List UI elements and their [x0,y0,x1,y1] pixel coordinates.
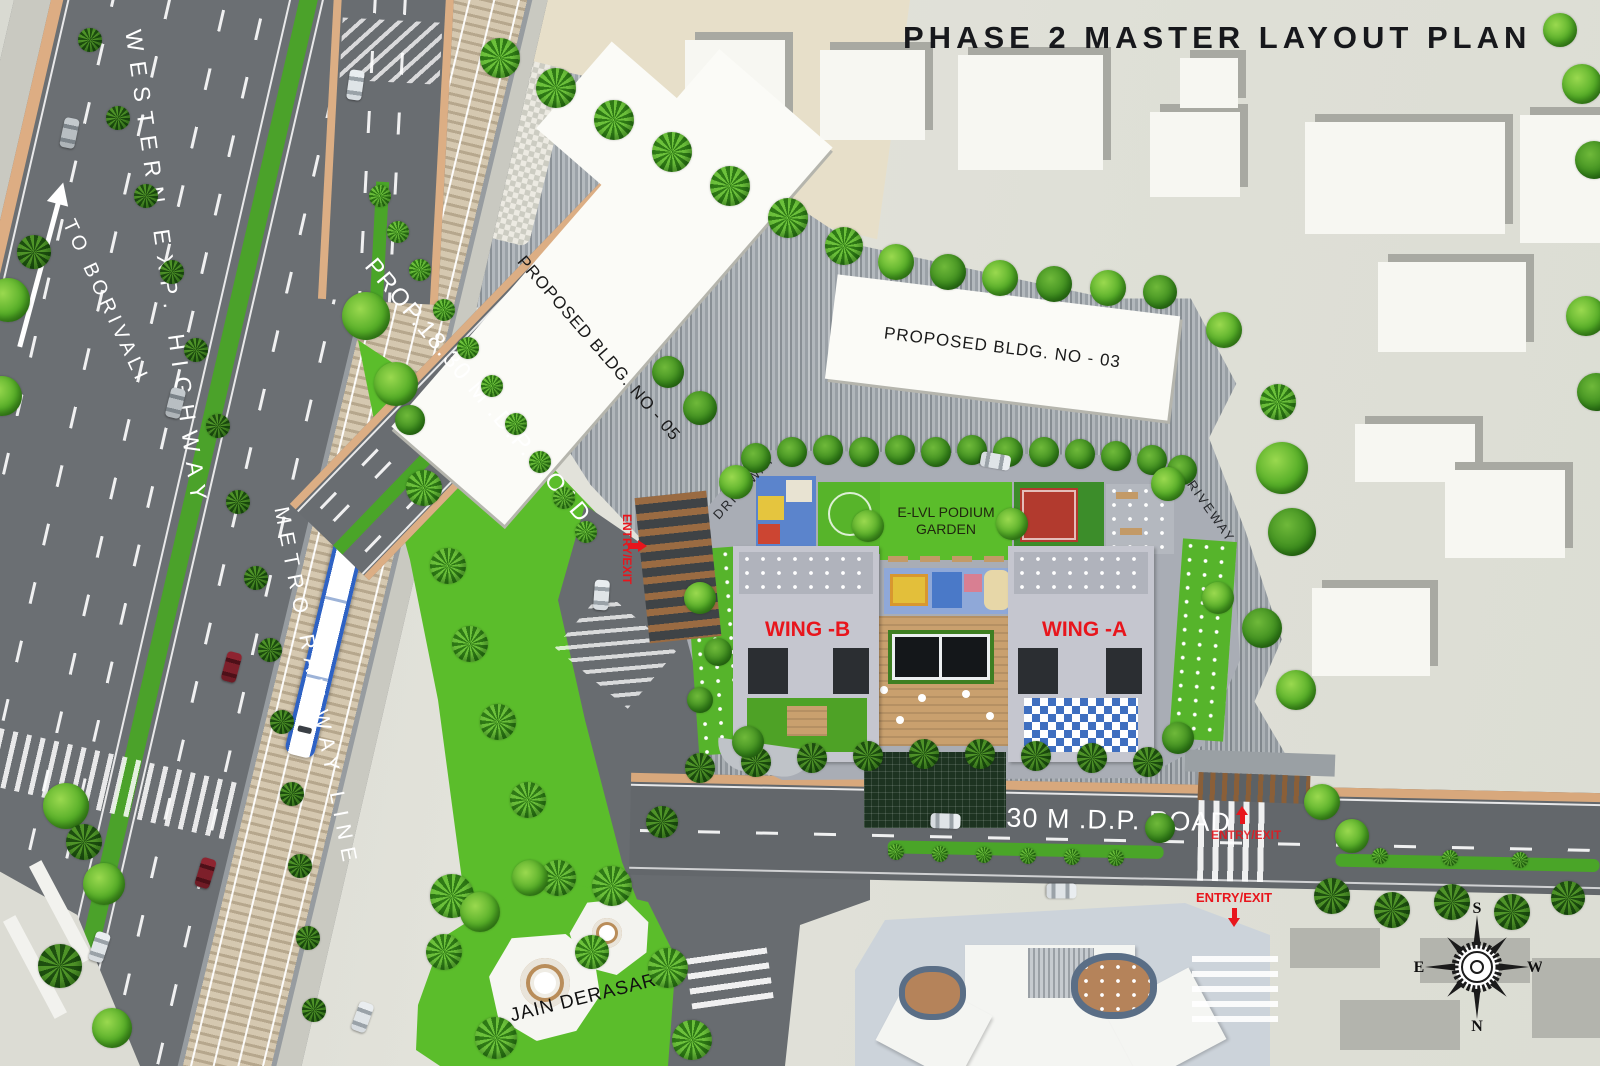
palm-tree-icon [797,743,827,773]
palm-tree-icon [1064,849,1080,865]
wing-a-core [1106,648,1142,694]
tree-icon [878,244,914,280]
tree-icon [777,437,807,467]
palm-tree-icon [430,548,466,584]
tree-icon [1145,813,1175,843]
tree-icon [512,860,548,896]
compass-east-label: E [1414,959,1425,976]
reflecting-pool [892,634,990,680]
page-title: PHASE 2 MASTER LAYOUT PLAN [903,20,1531,56]
palm-tree-icon [710,166,750,206]
tree-icon [652,356,684,388]
car-icon [930,813,961,829]
palm-tree-icon [594,100,634,140]
palm-tree-icon [505,413,527,435]
bench [888,556,908,562]
tree-icon [1036,266,1072,302]
palm-tree-icon [685,753,715,783]
palm-tree-icon [1314,878,1350,914]
palm-tree-icon [1442,850,1458,866]
context-building [1378,262,1526,352]
west-gate-canopy [635,491,722,644]
context-building [1445,470,1565,558]
palm-tree-icon [244,566,268,590]
dp-road-south: PROP.18.30 M .D.P. ROAD [629,773,1600,895]
tree-icon [92,1008,132,1048]
palm-tree-icon [17,235,51,269]
podium-sports-court [1014,482,1104,548]
context-building [1312,588,1430,676]
palm-tree-icon [652,132,692,172]
palm-tree-icon [78,28,102,52]
palm-tree-icon [1108,850,1124,866]
tree-icon [1029,437,1059,467]
tree-icon [1242,608,1282,648]
kids-playground [884,568,1012,614]
tree-icon [852,510,884,542]
palm-tree-icon [553,487,575,509]
bench [952,556,972,562]
phase1-deck [1078,960,1150,1012]
bench [920,556,940,562]
palm-tree-icon [932,846,948,862]
tree-icon [684,582,716,614]
tree-icon [1202,582,1234,614]
palm-tree-icon [1512,852,1528,868]
tree-icon [885,435,915,465]
palm-tree-icon [1021,741,1051,771]
tree-icon [1335,819,1369,853]
tree-icon [1577,373,1600,411]
tree-icon [43,783,89,829]
palm-tree-icon [529,451,551,473]
car-icon [1047,884,1077,899]
context-building [1180,58,1238,108]
palm-tree-icon [672,1020,712,1060]
palm-tree-icon [575,935,609,969]
palm-tree-icon [1020,848,1036,864]
palm-tree-icon [296,926,320,950]
wing-b-core [748,648,788,694]
palm-tree-icon [426,934,462,970]
entry-arrow-down-icon [1228,918,1240,927]
palm-tree-icon [510,782,546,818]
palm-tree-icon [1133,747,1163,777]
entry-exit-west-label: ENTRY/EXIT [620,514,634,584]
palm-tree-icon [976,847,992,863]
palm-tree-icon [888,844,904,860]
podium-garden-label: E-LVL PODIUM GARDEN [891,504,1001,539]
wing-a-label: WING -A [1042,618,1127,642]
wing-b-core [833,648,869,694]
tree-icon [1162,722,1194,754]
palm-tree-icon [457,337,479,359]
compass-north-label: N [1471,1018,1483,1032]
palm-tree-icon [433,299,455,321]
tree-icon [1304,784,1340,820]
phase1-deck [905,972,960,1014]
palm-tree-icon [1434,884,1470,920]
palm-tree-icon [1260,384,1296,420]
pedestrian-crossing [1192,948,1278,1022]
tree-icon [813,435,843,465]
wing-a: WING -A [1008,546,1154,762]
entry-arrow-up-icon [1236,806,1248,815]
master-layout-plan: PROP.18.30 M .D.P. ROAD PROPOSED BLDG. N… [0,0,1600,1066]
tree-icon [1268,508,1316,556]
compass-west-label: W [1527,959,1542,976]
palm-tree-icon [134,184,158,208]
palm-tree-icon [768,198,808,238]
tree-icon [1276,670,1316,710]
context-building [820,50,925,140]
tree-icon [849,437,879,467]
proposed-bldg-03-label: PROPOSED BLDG. NO - 03 [883,323,1122,372]
tree-icon [1543,13,1577,47]
tree-icon [1566,296,1600,336]
palm-tree-icon [909,739,939,769]
palm-tree-icon [270,710,294,734]
palm-tree-icon [475,1017,517,1059]
tree-icon [704,638,732,666]
tree-icon [687,687,713,713]
entry-arrow-down-icon [1232,908,1237,918]
wing-a-core [1018,648,1058,694]
palm-tree-icon [648,948,688,988]
phase1-pergola [1198,772,1311,804]
palm-tree-icon [369,185,391,207]
palm-tree-icon [387,221,409,243]
podium-lawn: E-LVL PODIUM GARDEN [880,482,1012,560]
compass-south-label: S [1473,902,1482,917]
central-deck [866,616,1012,746]
entry-arrow-up-icon [1240,814,1245,824]
palm-tree-icon [480,704,516,740]
tree-icon [1065,439,1095,469]
palm-tree-icon [406,470,442,506]
palm-tree-icon [481,375,503,397]
tree-icon [374,362,418,406]
palm-tree-icon [536,68,576,108]
tree-icon [1151,467,1185,501]
palm-tree-icon [206,414,230,438]
wing-b-label: WING -B [765,618,850,642]
palm-tree-icon [160,260,184,284]
palm-tree-icon [480,38,520,78]
tree-icon [982,260,1018,296]
palm-tree-icon [452,626,488,662]
context-building [1150,112,1240,197]
context-building [1305,122,1505,234]
context-building-footprint [1290,928,1380,968]
palm-tree-icon [184,338,208,362]
tree-icon [683,391,717,425]
palm-tree-icon [106,106,130,130]
tree-icon [930,254,966,290]
palm-tree-icon [575,521,597,543]
tree-icon [1256,442,1308,494]
tree-icon [395,405,425,435]
bench [984,556,1004,562]
car-icon [593,580,610,611]
palm-tree-icon [965,739,995,769]
palm-tree-icon [825,227,863,265]
context-building [958,55,1103,170]
palm-tree-icon [258,638,282,662]
tree-icon [1090,270,1126,306]
tree-icon [1101,441,1131,471]
palm-tree-icon [409,259,431,281]
entry-arrow-right-icon [628,543,638,549]
palm-tree-icon [646,806,678,838]
context-building [1520,115,1600,243]
palm-tree-icon [302,998,326,1022]
tree-icon [1206,312,1242,348]
palm-tree-icon [226,490,250,514]
tree-icon [719,465,753,499]
palm-tree-icon [1077,743,1107,773]
palm-tree-icon [1551,881,1585,915]
tree-icon [460,892,500,932]
palm-tree-icon [1372,848,1388,864]
context-building-footprint [1532,958,1600,1038]
entry-arrow-right-icon [638,540,647,552]
tree-icon [1562,64,1600,104]
palm-tree-icon [1494,894,1530,930]
entry-exit-south-outer-label: ENTRY/EXIT [1196,890,1272,905]
palm-tree-icon [853,741,883,771]
palm-tree-icon [280,782,304,806]
tree-icon [996,508,1028,540]
wing-a-terrace [1014,552,1148,594]
palm-tree-icon [288,854,312,878]
tree-icon [342,292,390,340]
tree-icon [732,726,764,758]
palm-tree-icon [592,866,632,906]
palm-tree-icon [66,824,102,860]
tree-icon [1143,275,1177,309]
tree-icon [921,437,951,467]
wing-b-terrace [739,552,873,594]
tree-icon [83,863,125,905]
palm-tree-icon [38,944,82,988]
car-icon [350,1000,374,1033]
entry-exit-south-inner-label: ENTRY/EXIT [1211,828,1281,842]
palm-tree-icon [1374,892,1410,928]
